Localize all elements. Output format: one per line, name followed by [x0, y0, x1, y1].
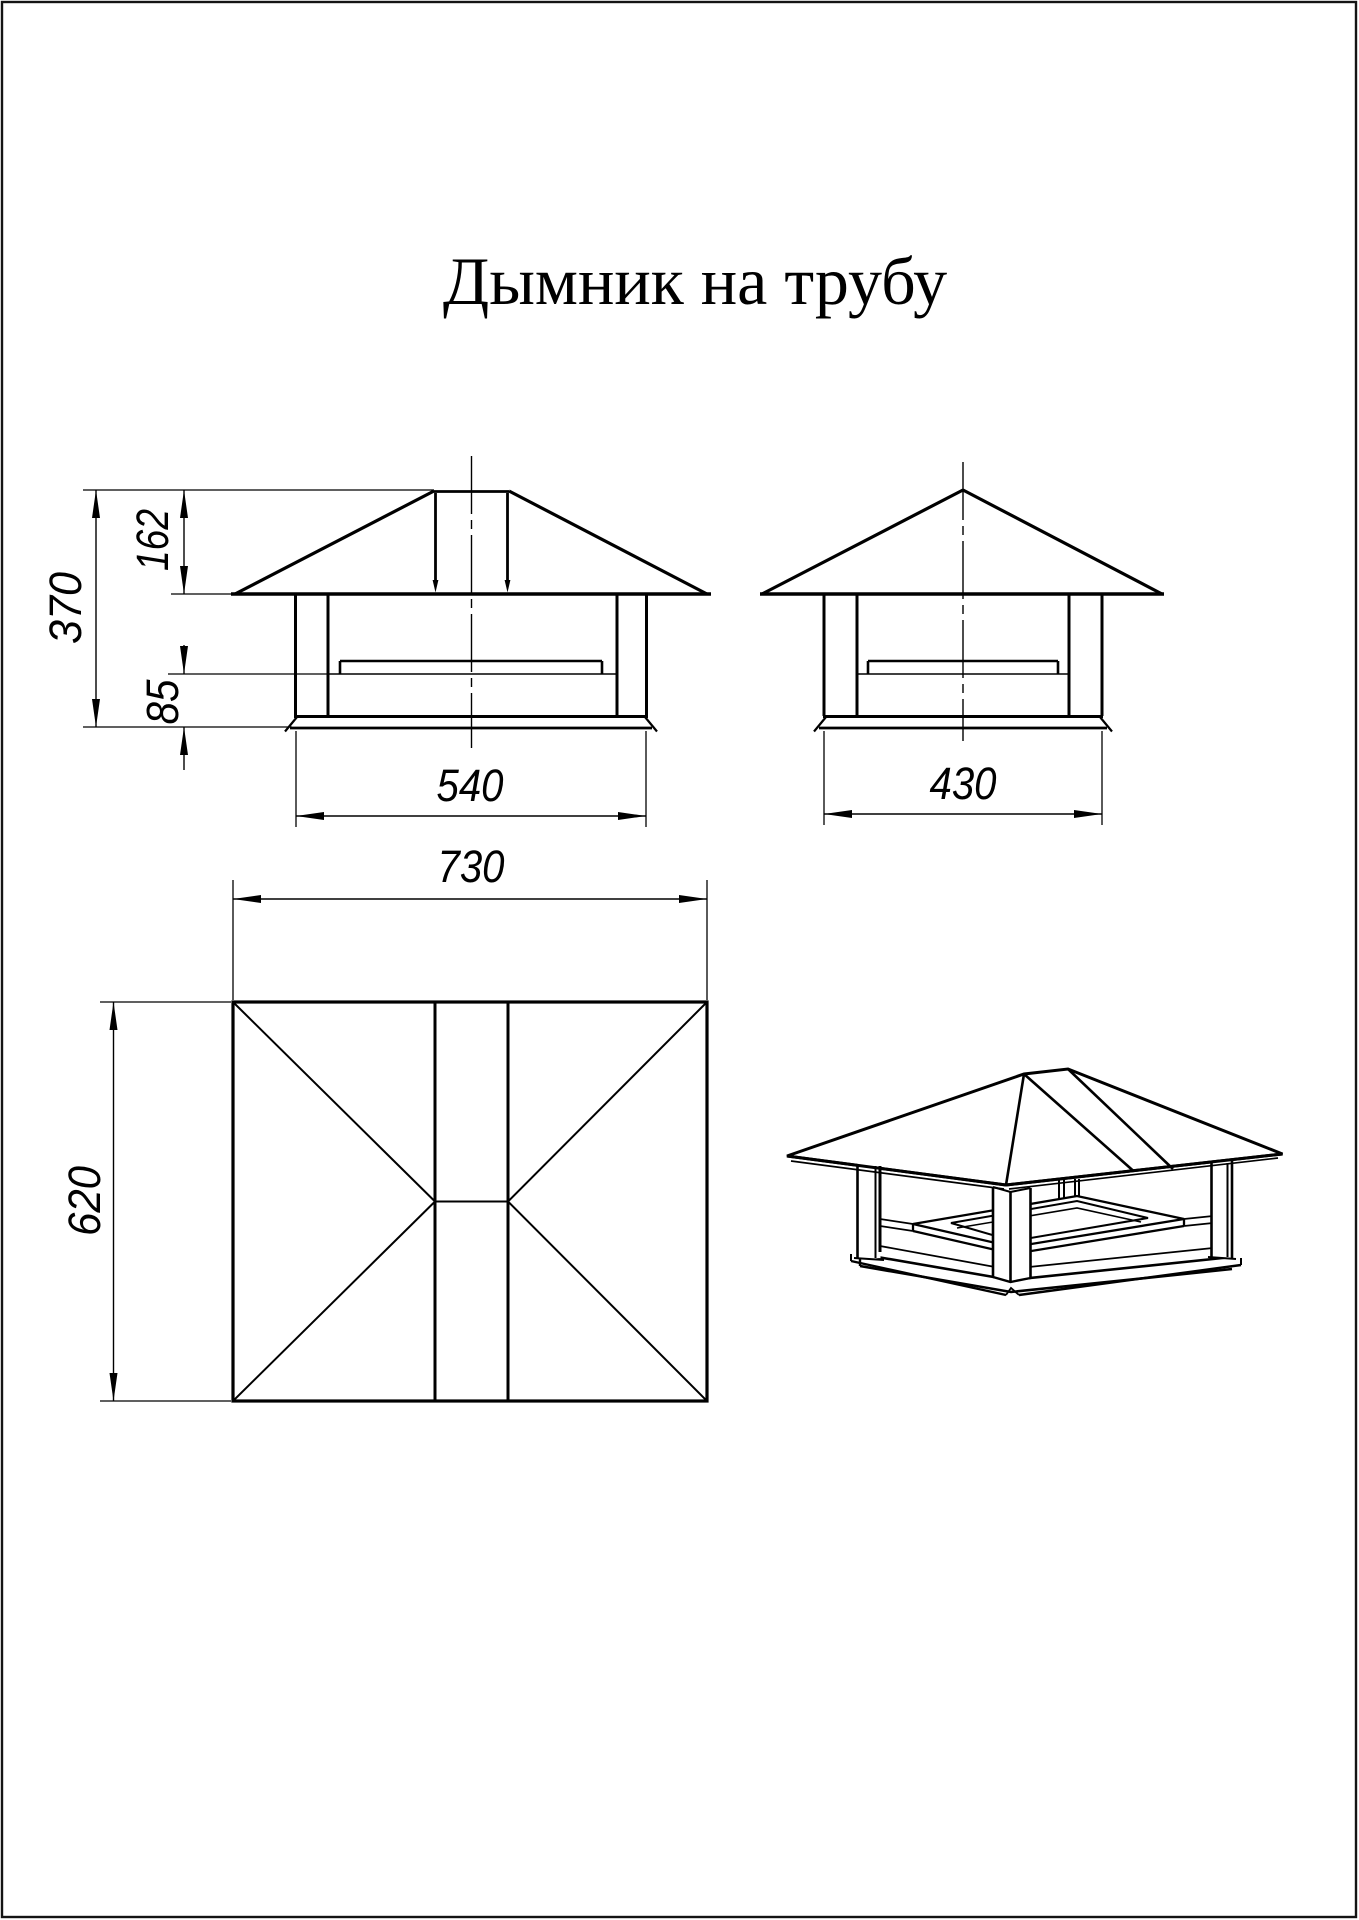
svg-text:Дымник на трубу: Дымник на трубу	[443, 243, 947, 319]
svg-text:162: 162	[127, 509, 178, 571]
svg-text:730: 730	[438, 841, 505, 892]
svg-text:540: 540	[437, 760, 504, 811]
svg-text:85: 85	[137, 679, 188, 725]
svg-text:370: 370	[40, 572, 91, 644]
svg-text:430: 430	[930, 758, 997, 809]
svg-text:620: 620	[59, 1166, 110, 1236]
